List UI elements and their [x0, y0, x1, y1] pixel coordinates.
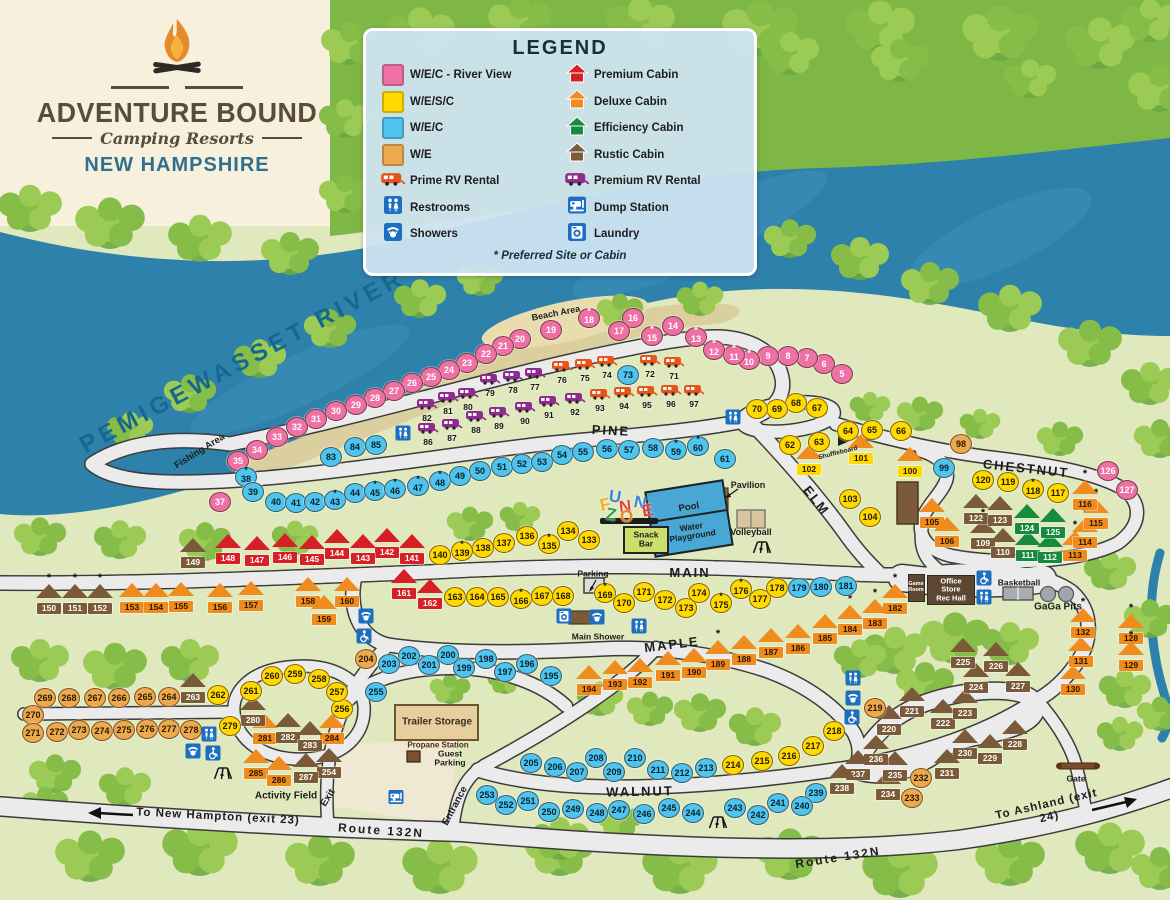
site-65: 65	[861, 420, 883, 440]
site-179: 179	[788, 578, 810, 598]
legend-item-right-0: Premium Cabin	[560, 62, 744, 89]
site-28: 28	[364, 388, 386, 408]
prime-rv-icon	[589, 387, 611, 404]
rv-number: 77	[524, 382, 546, 392]
site-198: 198	[475, 649, 497, 669]
rv-number: 71	[663, 371, 685, 381]
site-140: 140	[429, 545, 451, 565]
cabin-131: 131	[1064, 637, 1098, 669]
site-258: 258	[308, 669, 330, 689]
cabin-roof-icon	[1118, 641, 1144, 655]
site-268: 268	[58, 688, 80, 708]
label-gate: Gate	[1067, 774, 1086, 783]
legend-item-label: Deluxe Cabin	[594, 96, 667, 108]
site-18: *18	[578, 308, 600, 328]
site-56: 56	[596, 439, 618, 459]
campfire-icon	[145, 18, 209, 76]
cabin-number: 225	[951, 657, 975, 668]
site-69: 69	[766, 399, 788, 419]
cabin-number: 287	[294, 772, 318, 783]
legend-item-label: W/E/C - River View	[410, 69, 511, 81]
site-251: 251	[517, 791, 539, 811]
accessible-icon	[357, 629, 372, 644]
site-55: 55	[572, 442, 594, 462]
cabin-premium-icon	[566, 63, 588, 88]
site-104: 104	[859, 507, 881, 527]
label-basketball: Basketball	[998, 578, 1041, 587]
label-pine: PINE	[591, 423, 630, 439]
rule-left	[111, 86, 169, 89]
label-volleyball: Volleyball	[730, 528, 771, 538]
site-206: 206	[544, 757, 566, 777]
restroom-icon	[202, 727, 217, 742]
prime-rv-icon	[639, 353, 661, 370]
rv-site-77: 77	[524, 366, 546, 392]
cabin-roof-icon	[1118, 614, 1144, 628]
fun-zone-sign: FUNZONE	[598, 484, 662, 526]
cabin-number: 191	[656, 670, 680, 681]
legend-item-left-1: W/E/S/C	[376, 89, 560, 116]
cabin-number: 223	[953, 708, 977, 719]
rv-site-87: 87	[441, 417, 463, 443]
cabin-227: 227	[1001, 662, 1035, 694]
label-pavilion: Pavilion	[731, 481, 766, 491]
site-70: 70	[746, 399, 768, 419]
legend-item-right-6: Laundry	[560, 221, 744, 248]
site-27: 27	[383, 381, 405, 401]
legend-item-label: Efficiency Cabin	[594, 122, 683, 134]
cabin-263: 263	[176, 673, 210, 705]
cabin-157: 157	[234, 581, 268, 613]
shower-icon	[846, 691, 861, 706]
rv-number: 89	[488, 421, 510, 431]
legend-item-right-2: Efficiency Cabin	[560, 115, 744, 142]
cabin-number: 194	[577, 684, 601, 695]
premium-rv-icon	[564, 391, 586, 408]
site-267: 267	[84, 688, 106, 708]
cabin-roof-icon	[1040, 508, 1066, 522]
site-7: 7	[796, 348, 818, 368]
rv-site-93: 93	[589, 387, 611, 413]
site-40: 40	[265, 492, 287, 512]
site-270: 270	[22, 705, 44, 725]
laundry-icon	[568, 223, 586, 246]
dump-icon	[568, 196, 586, 219]
legend-item-label: Prime RV Rental	[410, 175, 499, 187]
legend-item-label: Rustic Cabin	[594, 149, 664, 161]
site-51: 51	[491, 457, 513, 477]
legend-item-label: Premium Cabin	[594, 69, 678, 81]
site-53: 53	[531, 452, 553, 472]
cabin-147: 147	[240, 536, 274, 568]
prime-rv-icon	[551, 359, 573, 376]
cabin-221: 221	[895, 687, 929, 719]
site-54: 54	[551, 445, 573, 465]
premium-rv-icon	[538, 394, 560, 411]
rv-site-90: 90	[514, 400, 536, 426]
legend-title: LEGEND	[366, 37, 754, 60]
cabin-deluxe-icon	[566, 89, 588, 114]
cabin-roof-icon	[87, 584, 113, 598]
legend: LEGEND W/E/C - River ViewW/E/S/CW/E/CW/E…	[363, 28, 757, 276]
label-parking: Parking	[577, 569, 608, 578]
site-63: 63	[808, 432, 830, 452]
cabin-number: 231	[935, 768, 959, 779]
cabin-231: 231	[930, 749, 964, 781]
cabin-number: 157	[239, 600, 263, 611]
rv-site-96: 96	[660, 383, 682, 409]
site-244: 244	[682, 803, 704, 823]
cabin-roof-icon	[950, 638, 976, 652]
site-259: 259	[284, 664, 306, 684]
cabin-number: 143	[351, 553, 375, 564]
site-117: 117	[1047, 483, 1069, 503]
site-219: 219	[864, 698, 886, 718]
cabin-roof-icon	[293, 753, 319, 767]
site-266: 266	[108, 688, 130, 708]
site-261: 261	[240, 681, 262, 701]
cabin-155: 155	[164, 582, 198, 614]
site-248: 248	[586, 803, 608, 823]
swatch-yellow-icon	[382, 91, 404, 113]
cabin-roof-icon	[215, 534, 241, 548]
site-58: 58	[642, 438, 664, 458]
cabin-130: 130	[1056, 665, 1090, 697]
site-210: 210	[624, 748, 646, 768]
site-136: 136	[516, 526, 538, 546]
site-61: 61	[714, 449, 736, 469]
legend-item-left-2: W/E/C	[376, 115, 560, 142]
site-171: 171	[633, 582, 655, 602]
rv-site-75: 75	[574, 357, 596, 383]
swing-icon	[214, 766, 233, 781]
premium-rv-icon	[437, 390, 459, 407]
site-68: 68	[785, 393, 807, 413]
premium-rv-icon	[524, 366, 546, 383]
site-67: 67	[806, 398, 828, 418]
cabin-number: 147	[245, 555, 269, 566]
site-255: 255	[365, 682, 387, 702]
rv-site-71: 71	[663, 355, 685, 381]
site-163: 163	[444, 587, 466, 607]
rv-site-97: 97	[683, 383, 705, 409]
site-274: 274	[91, 721, 113, 741]
site-256: 256	[331, 699, 353, 719]
cabin-roof-icon	[934, 749, 960, 763]
cabin-roof-icon	[207, 583, 233, 597]
site-201: 201	[418, 655, 440, 675]
label-guest-parking: Guest Parking	[434, 750, 465, 769]
cabin-roof-icon	[845, 750, 871, 764]
site-45: *45	[364, 481, 386, 501]
site-103: 103	[839, 489, 861, 509]
cabin-roof-icon	[758, 628, 784, 642]
shower-icon	[359, 609, 374, 624]
legend-item-left-5: Restrooms	[376, 195, 560, 222]
legend-item-label: W/E/C	[410, 122, 443, 134]
cabin-number: 286	[267, 775, 291, 786]
logo-name: ADVENTURE BOUND	[28, 99, 326, 127]
fun-zone-letter: E	[641, 501, 655, 520]
cabin-number: 146	[273, 552, 297, 563]
cabin-number: 280	[241, 715, 265, 726]
cabin-number: 149	[181, 557, 205, 568]
site-73: 73	[617, 365, 639, 385]
legend-item-label: Laundry	[594, 228, 639, 240]
cabin-194: 194	[572, 665, 606, 697]
prime-rv-icon	[660, 383, 682, 400]
rv-site-76: 76	[551, 359, 573, 385]
cabin-number: 156	[208, 602, 232, 613]
rv-number: 87	[441, 433, 463, 443]
legend-item-right-5: Dump Station	[560, 195, 744, 222]
rv-number: 75	[574, 373, 596, 383]
site-262: 262	[207, 685, 229, 705]
site-170: 170	[613, 593, 635, 613]
cabin-number: 263	[181, 692, 205, 703]
premium-rv-icon	[564, 172, 590, 191]
site-11: *11	[723, 345, 745, 365]
site-197: 197	[494, 662, 516, 682]
cabin-number: 152	[88, 603, 112, 614]
cabin-160: 160	[330, 577, 364, 609]
site-127: 127	[1116, 480, 1138, 500]
site-139: *139	[451, 541, 473, 561]
site-211: 211	[647, 760, 669, 780]
rv-number: 95	[636, 400, 658, 410]
rv-site-79: 79	[479, 372, 501, 398]
site-246: 246	[633, 804, 655, 824]
site-166: *166	[510, 589, 532, 609]
cabin-rustic-icon	[566, 142, 588, 167]
site-126: 126	[1097, 461, 1119, 481]
cabin-116: *116	[1068, 480, 1102, 512]
site-217: 217	[802, 736, 824, 756]
rv-number: 92	[564, 407, 586, 417]
site-62: 62	[779, 435, 801, 455]
site-133: 133	[578, 530, 600, 550]
site-250: 250	[538, 802, 560, 822]
legend-item-label: Dump Station	[594, 202, 669, 214]
site-213: 213	[695, 758, 717, 778]
cabin-roof-icon	[829, 764, 855, 778]
cabin-number: 112	[1038, 552, 1062, 563]
legend-item-left-0: W/E/C - River View	[376, 62, 560, 89]
site-134: 134	[557, 521, 579, 541]
site-22: 22	[475, 344, 497, 364]
site-33: 33	[266, 427, 288, 447]
cabin-number: 102	[797, 464, 821, 475]
cabin-number: 114	[1073, 537, 1097, 548]
legend-item-label: Showers	[410, 228, 458, 240]
site-31: 31	[305, 409, 327, 429]
site-215: 215	[751, 751, 773, 771]
cabin-149: 149	[176, 538, 210, 570]
cabin-roof-icon	[1072, 480, 1098, 494]
site-195: 195	[540, 666, 562, 686]
site-30: 30	[325, 401, 347, 421]
rv-number: 93	[589, 403, 611, 413]
restroom-icon	[846, 671, 861, 686]
cabin-roof-icon	[863, 735, 889, 749]
cabin-number: 115	[1084, 518, 1108, 529]
rv-site-89: 89	[488, 405, 510, 431]
site-247: 247	[608, 800, 630, 820]
site-135: *135	[538, 534, 560, 554]
cabin-roof-icon	[334, 577, 360, 591]
rv-number: 81	[437, 406, 459, 416]
site-49: 49	[449, 466, 471, 486]
cabin-roof-icon	[785, 624, 811, 638]
swatch-pink-icon	[382, 64, 404, 86]
rv-number: 90	[514, 416, 536, 426]
site-60: *60	[687, 436, 709, 456]
cabin-number: 131	[1069, 656, 1093, 667]
site-240: 240	[791, 796, 813, 816]
site-13: *13	[685, 327, 707, 347]
site-242: 242	[747, 805, 769, 825]
site-98: 98	[950, 434, 972, 454]
site-59: *59	[665, 440, 687, 460]
site-85: 85	[365, 435, 387, 455]
cabin-number: 224	[964, 682, 988, 693]
site-203: 203	[378, 654, 400, 674]
cabin-roof-icon	[899, 687, 925, 701]
prime-rv-icon	[636, 384, 658, 401]
site-196: 196	[516, 654, 538, 674]
label-main: MAIN	[669, 566, 710, 580]
prime-rv-icon	[663, 355, 685, 372]
label-trailer-storage: Trailer Storage	[402, 717, 472, 728]
site-174: 174	[688, 583, 710, 603]
cabin-number: 227	[1006, 681, 1030, 692]
site-278: 278	[180, 720, 202, 740]
label-activity-field: Activity Field	[255, 791, 317, 802]
cabin-roof-icon	[987, 496, 1013, 510]
site-181: 181	[835, 576, 857, 596]
site-214: 214	[722, 755, 744, 775]
cabin-number: 235	[883, 770, 907, 781]
campground-map: ADVENTURE BOUND Camping Resorts NEW HAMP…	[0, 0, 1170, 900]
cabin-number: 160	[335, 596, 359, 607]
premium-rv-icon	[502, 369, 524, 386]
cabin-number: 106	[935, 536, 959, 547]
restroom-icon	[726, 410, 741, 425]
rv-number: 72	[639, 369, 661, 379]
site-137: 137	[493, 533, 515, 553]
cabin-100: 100	[893, 447, 927, 479]
site-48: *48	[429, 471, 451, 491]
site-165: 165	[487, 587, 509, 607]
premium-rv-icon	[416, 397, 438, 414]
cabin-number: 185	[813, 633, 837, 644]
rv-site-81: 81	[437, 390, 459, 416]
label-main-shower: Main Shower	[572, 632, 624, 641]
site-257: 257	[326, 682, 348, 702]
cabin-roof-icon	[952, 729, 978, 743]
premium-rv-icon	[514, 400, 536, 417]
site-264: 264	[158, 687, 180, 707]
cabin-roof-icon	[297, 721, 323, 735]
legend-footnote: * Preferred Site or Cabin	[366, 250, 754, 262]
cabin-number: 187	[759, 647, 783, 658]
site-168: 168	[552, 586, 574, 606]
logo: ADVENTURE BOUND Camping Resorts NEW HAMP…	[22, 18, 332, 177]
legend-item-left-4: Prime RV Rental	[376, 168, 560, 195]
legend-item-right-4: Premium RV Rental	[560, 168, 744, 195]
cabin-238: 238	[825, 764, 859, 796]
site-212: 212	[671, 763, 693, 783]
site-233: 233	[901, 788, 923, 808]
site-25: 25	[420, 367, 442, 387]
site-207: 207	[566, 762, 588, 782]
cabin-132: *132	[1066, 608, 1100, 640]
site-178: 178	[766, 578, 788, 598]
logo-subtitle: Camping Resorts	[22, 129, 332, 148]
rv-number: 78	[502, 385, 524, 395]
site-39: 39	[242, 482, 264, 502]
cabin-162: 162	[413, 579, 447, 611]
cabin-roof-icon	[299, 535, 325, 549]
legend-item-label: Premium RV Rental	[594, 175, 701, 187]
site-276: 276	[136, 719, 158, 739]
site-216: 216	[778, 746, 800, 766]
site-205: 205	[520, 753, 542, 773]
site-275: 275	[113, 720, 135, 740]
cabin-number: 188	[732, 654, 756, 665]
cabin-number: 186	[786, 643, 810, 654]
cabin-roof-icon	[1002, 720, 1028, 734]
site-260: 260	[261, 666, 283, 686]
site-245: 245	[658, 798, 680, 818]
site-172: 172	[654, 590, 676, 610]
cabin-number: 190	[682, 667, 706, 678]
site-265: 265	[134, 687, 156, 707]
cabin-number: 283	[298, 740, 322, 751]
rv-site-88: 88	[465, 409, 487, 435]
cabin-roof-icon	[295, 577, 321, 591]
cabin-number: 148	[216, 553, 240, 564]
site-29: 29	[345, 395, 367, 415]
cabin-number: 145	[300, 554, 324, 565]
premium-rv-icon	[488, 405, 510, 422]
cabin-number: 159	[312, 614, 336, 625]
site-9: 9	[757, 346, 779, 366]
site-279: 279	[219, 716, 241, 736]
site-175: *175	[710, 593, 732, 613]
site-120: 120	[972, 470, 994, 490]
site-180: 180	[810, 577, 832, 597]
prime-rv-icon	[380, 172, 406, 191]
site-34: 34	[246, 440, 268, 460]
cabin-number: 132	[1071, 627, 1095, 638]
site-44: 44	[344, 483, 366, 503]
cabin-152: *152	[83, 584, 117, 616]
rv-number: 76	[551, 375, 573, 385]
cabin-roof-icon	[576, 665, 602, 679]
rv-number: 97	[683, 399, 705, 409]
prime-rv-icon	[574, 357, 596, 374]
premium-rv-icon	[457, 386, 479, 403]
cabin-roof-icon	[168, 582, 194, 596]
site-241: 241	[767, 793, 789, 813]
rv-site-78: 78	[502, 369, 524, 395]
shower-icon	[590, 610, 605, 625]
site-15: *15	[641, 326, 663, 346]
rv-site-92: 92	[564, 391, 586, 417]
cabin-number: 130	[1061, 684, 1085, 695]
cabin-number: 100	[898, 466, 922, 477]
